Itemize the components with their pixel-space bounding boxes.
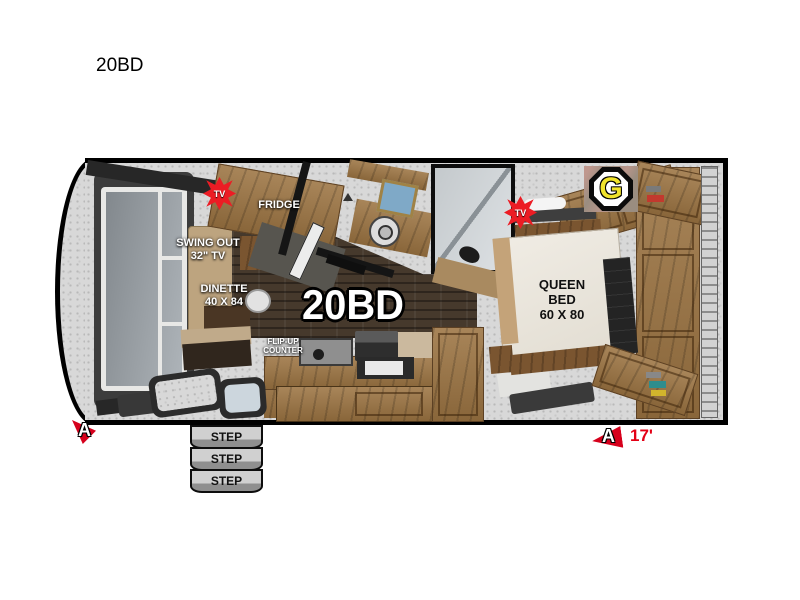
floorplan-page: 20BD FRIDGE SWING OUT 32" TV DINETTE 40 … bbox=[0, 0, 800, 600]
swing-tv-line2: 32" TV bbox=[164, 250, 252, 263]
queen-line2: BED bbox=[527, 292, 597, 307]
dinette-line2: 40 X 84 bbox=[183, 296, 265, 309]
dinette-bench-end bbox=[182, 340, 252, 371]
kitchen-tall-cabinet bbox=[432, 327, 484, 422]
step: STEP bbox=[190, 447, 263, 471]
camera-marker-letter: A bbox=[78, 420, 91, 441]
vanity-sink-bowl bbox=[369, 216, 400, 247]
kitchen-backsplash bbox=[396, 332, 436, 358]
flip-up-counter-panel bbox=[299, 338, 353, 366]
sink-drain bbox=[378, 225, 393, 240]
nightstand bbox=[489, 345, 514, 374]
window-mullion bbox=[158, 192, 162, 386]
shelf-item bbox=[647, 195, 664, 202]
queen-line1: QUEEN bbox=[527, 277, 597, 292]
door-swing-mark bbox=[343, 193, 353, 201]
swing-tv-line1: SWING OUT bbox=[164, 237, 252, 250]
entry-steps: STEP STEP STEP bbox=[190, 425, 263, 493]
shelf-item bbox=[646, 372, 661, 378]
tv-badge-bedroom: TV bbox=[515, 208, 527, 218]
wardrobe-door-panel bbox=[635, 168, 706, 218]
window-glass bbox=[154, 374, 218, 412]
flip-up-counter-label: FLIP-UP COUNTER bbox=[261, 338, 305, 355]
cabinet-door-panel bbox=[355, 392, 423, 416]
swing-tv-label: SWING OUT 32" TV bbox=[164, 237, 252, 263]
kitchen-counter-front bbox=[276, 386, 458, 422]
camera-marker-letter: A bbox=[602, 426, 615, 447]
brand-logo-letter: G bbox=[589, 167, 633, 211]
length-label: 17' bbox=[630, 426, 653, 446]
step: STEP bbox=[190, 469, 263, 493]
kitchen-sink bbox=[357, 357, 414, 379]
entry-door-window bbox=[218, 376, 268, 419]
flipup-line2: COUNTER bbox=[261, 347, 305, 356]
wardrobe-door-panel bbox=[642, 254, 694, 332]
queen-line3: 60 X 80 bbox=[527, 307, 597, 322]
step: STEP bbox=[190, 425, 263, 449]
camera-marker-rear: A bbox=[590, 422, 630, 452]
tv-badge-front: TV bbox=[214, 189, 226, 199]
shelf-item bbox=[646, 186, 661, 192]
window-glass bbox=[224, 383, 261, 413]
shelf-item bbox=[651, 390, 666, 396]
fridge-label: FRIDGE bbox=[246, 199, 312, 211]
lounge-window-glass bbox=[106, 192, 182, 386]
tv-icon: TV bbox=[203, 177, 236, 210]
shelf-item bbox=[649, 381, 666, 388]
model-label: 20BD bbox=[291, 281, 415, 329]
camera-marker-front: A bbox=[70, 416, 106, 450]
skylight bbox=[376, 179, 419, 218]
cabinet-door-panel bbox=[438, 333, 478, 416]
sink-basin bbox=[365, 361, 403, 375]
wardrobe-ladder-rack bbox=[701, 166, 718, 418]
tv-icon: TV bbox=[504, 196, 537, 229]
page-title: 20BD bbox=[96, 55, 144, 77]
queen-bed-label: QUEEN BED 60 X 80 bbox=[527, 277, 597, 322]
dinette-label: DINETTE 40 X 84 bbox=[183, 283, 265, 309]
window-mullion bbox=[158, 322, 182, 326]
dinette-line1: DINETTE bbox=[183, 283, 265, 296]
faucet-knob bbox=[313, 349, 324, 360]
